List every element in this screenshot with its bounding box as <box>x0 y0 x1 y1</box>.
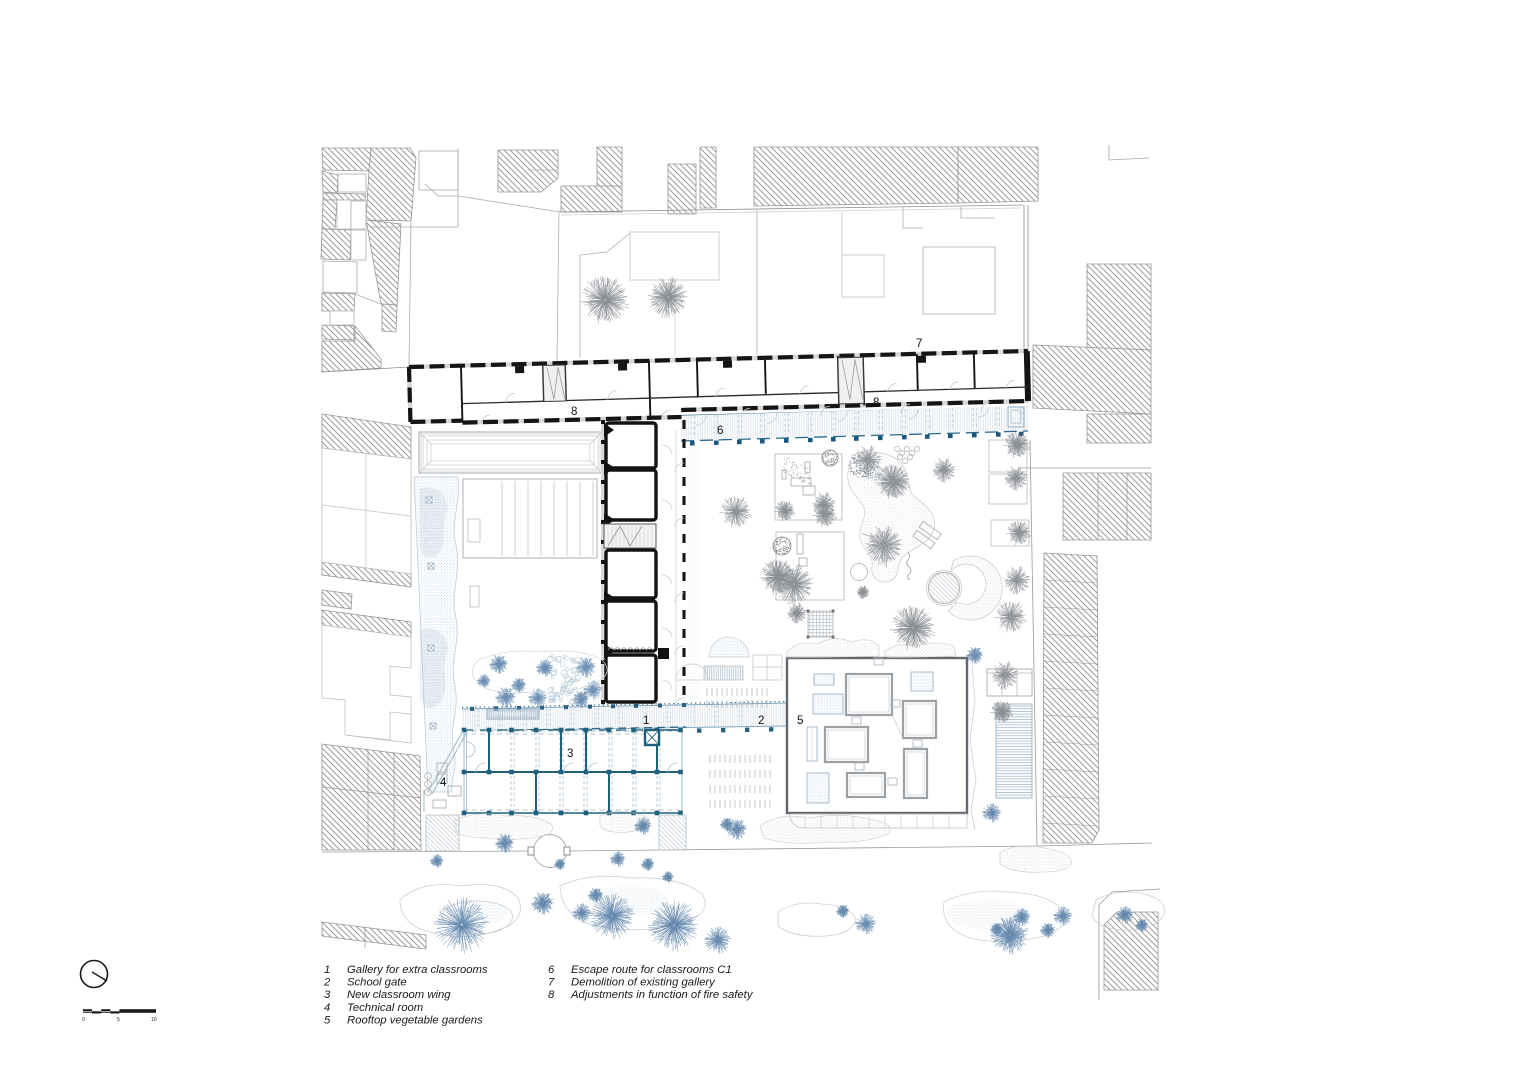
svg-text:6: 6 <box>717 425 723 437</box>
svg-text:8: 8 <box>548 989 555 1001</box>
svg-text:Rooftop vegetable gardens: Rooftop vegetable gardens <box>347 1014 483 1026</box>
svg-text:3: 3 <box>567 748 573 760</box>
svg-text:Adjustments in function of fir: Adjustments in function of fire safety <box>570 989 754 1001</box>
svg-text:School gate: School gate <box>347 977 407 989</box>
svg-text:2: 2 <box>758 715 764 727</box>
svg-text:0: 0 <box>82 1017 85 1023</box>
svg-text:5: 5 <box>797 715 803 727</box>
svg-text:5: 5 <box>117 1017 120 1023</box>
svg-text:Technical room: Technical room <box>347 1002 423 1014</box>
svg-text:4: 4 <box>324 1002 330 1014</box>
svg-text:New classroom wing: New classroom wing <box>347 989 451 1001</box>
svg-text:6: 6 <box>548 964 555 976</box>
svg-text:4: 4 <box>440 777 447 789</box>
svg-text:7: 7 <box>916 338 922 350</box>
svg-text:10: 10 <box>151 1017 157 1023</box>
svg-text:5: 5 <box>324 1014 331 1026</box>
svg-text:Demolition of existing gallery: Demolition of existing gallery <box>571 977 716 989</box>
svg-text:8: 8 <box>873 397 879 409</box>
svg-text:7: 7 <box>548 977 555 989</box>
svg-text:1: 1 <box>324 964 330 976</box>
svg-text:1: 1 <box>643 715 649 727</box>
svg-text:3: 3 <box>324 989 331 1001</box>
svg-text:2: 2 <box>323 977 331 989</box>
svg-text:8: 8 <box>571 406 577 418</box>
svg-text:Gallery for extra classrooms: Gallery for extra classrooms <box>347 964 488 976</box>
svg-text:Escape route for classrooms C1: Escape route for classrooms C1 <box>571 964 732 976</box>
